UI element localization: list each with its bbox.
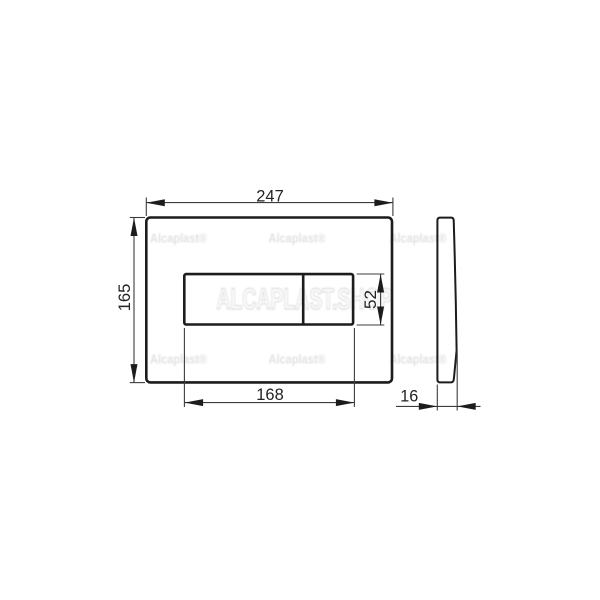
svg-text:52: 52 <box>361 290 380 309</box>
svg-text:Alcaplast®: Alcaplast® <box>269 231 326 246</box>
svg-text:165: 165 <box>115 284 134 312</box>
svg-text:16: 16 <box>400 386 418 405</box>
svg-text:Alcaplast®: Alcaplast® <box>150 352 207 367</box>
svg-text:Alcaplast®: Alcaplast® <box>150 231 207 246</box>
svg-text:247: 247 <box>256 187 284 206</box>
svg-text:Alcaplast®: Alcaplast® <box>269 352 326 367</box>
svg-text:168: 168 <box>256 385 284 404</box>
